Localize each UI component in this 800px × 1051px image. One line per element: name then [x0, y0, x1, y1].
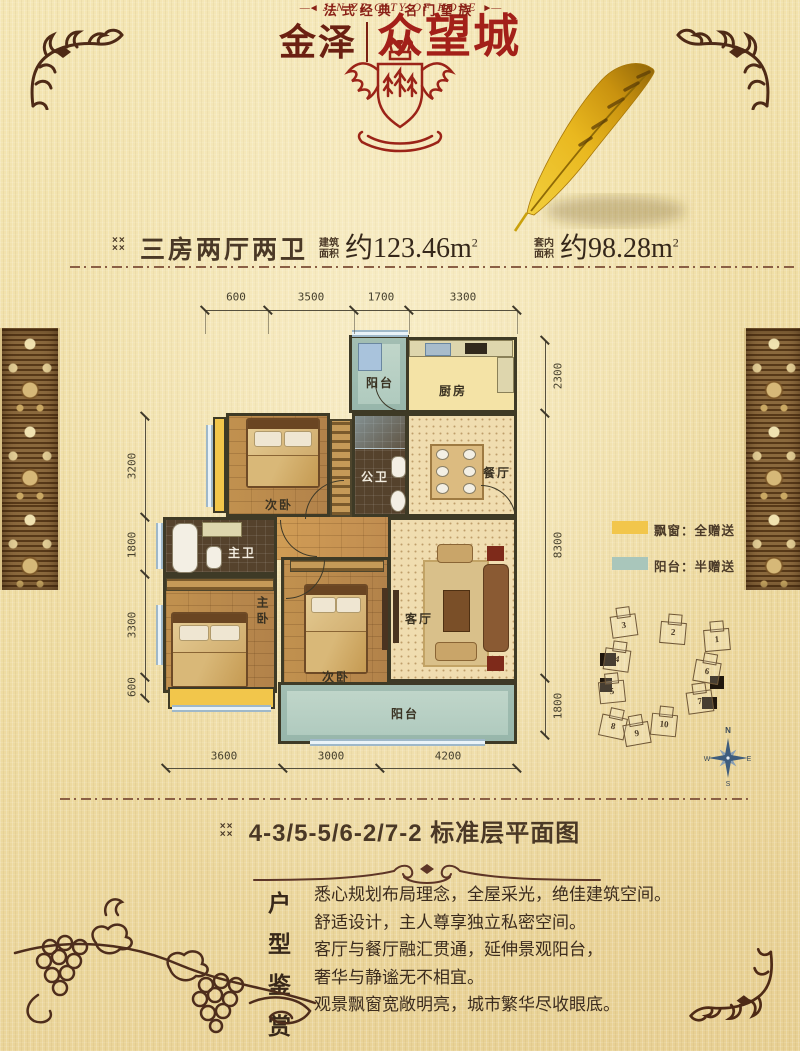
- dim-extension: [354, 312, 355, 334]
- dim-line: [166, 768, 517, 769]
- gross-area-sup: 2: [472, 236, 478, 250]
- bed-pillow: [311, 597, 336, 613]
- room-bedroom-master: 主卧: [163, 575, 277, 693]
- room-label-balcony-bottom: 阳台: [391, 705, 419, 722]
- dim-label: 3300: [450, 291, 477, 304]
- legend-swatch-balcony: [612, 557, 648, 570]
- building-wing: [615, 606, 630, 619]
- tv-wall: [393, 590, 399, 643]
- appreciation-line: 客厅与餐厅融汇贯通，延伸景观阳台，: [314, 937, 774, 965]
- footer-divider: [60, 798, 750, 800]
- plate-icon: [436, 483, 449, 494]
- dim-label: 8300: [552, 532, 565, 559]
- washing-machine-icon: [358, 343, 382, 371]
- window: [206, 425, 213, 507]
- dim-extension: [409, 312, 410, 334]
- stove-icon: [465, 343, 487, 354]
- dim-label: 3500: [298, 291, 325, 304]
- legend-label-bay-window: 飘窗：全赠送: [654, 520, 735, 539]
- site-building-9: 9: [622, 721, 651, 747]
- window: [310, 739, 485, 746]
- poster-page: 金泽 众望城 ―◄ JIN ZE CITY OF HOPE ►― 法式经典 名门…: [0, 0, 800, 1051]
- dim-label: 1700: [368, 291, 395, 304]
- window: [352, 330, 408, 337]
- bathtub-icon: [172, 523, 198, 573]
- plate-icon: [436, 466, 449, 477]
- bed-quilt: [173, 652, 246, 686]
- dim-label: 3300: [126, 612, 139, 639]
- site-building-2: 2: [659, 621, 687, 645]
- asterisk-ornament-icon: ××××: [220, 823, 240, 839]
- room-bath-master: 主卫: [163, 517, 277, 575]
- dim-label: 4200: [435, 750, 462, 763]
- building-number: 1: [705, 633, 730, 645]
- bed-pillow: [284, 431, 313, 447]
- dim-label: 1800: [552, 693, 565, 720]
- inner-area-label: 套内 面积: [534, 238, 554, 260]
- bed-headboard: [248, 420, 318, 429]
- compass-icon: N W E S: [703, 724, 753, 788]
- ornate-border-left: [0, 328, 60, 590]
- side-table-bottom: [487, 656, 504, 671]
- dim-extension: [268, 312, 269, 334]
- plate-icon: [463, 449, 476, 460]
- site-building-5: 5: [598, 680, 626, 705]
- bay-window-left: [213, 417, 226, 513]
- building-number: 3: [611, 618, 636, 631]
- armchair-bottom: [435, 642, 477, 661]
- gross-area-label-top: 建筑: [319, 238, 339, 249]
- dim-label: 3600: [211, 750, 238, 763]
- legend-swatch-bay-window: [612, 521, 648, 534]
- asterisk-ornament-icon: ××××: [112, 237, 132, 253]
- site-building-6: 6: [692, 659, 721, 685]
- shower-area: [355, 416, 405, 449]
- coffee-table: [443, 590, 470, 632]
- svg-text:N: N: [725, 726, 731, 735]
- building-wing: [668, 614, 683, 626]
- appreciation-text: 悉心规划布局理念，全屋采光，绝佳建筑空间。 舒适设计，主人尊享独立私密空间。 客…: [314, 882, 774, 1020]
- inner-area-number: 约98.28m: [560, 233, 673, 264]
- wardrobe-master: [166, 578, 274, 591]
- gross-area-label-bottom: 面积: [319, 249, 339, 260]
- building-number: 10: [652, 718, 677, 730]
- room-label-kitchen: 厨房: [439, 382, 467, 399]
- svg-text:W: W: [704, 756, 711, 763]
- building-wing: [604, 672, 619, 684]
- building-wing: [702, 652, 718, 665]
- kitchen-sink-icon: [425, 343, 451, 356]
- golden-feather-icon: [488, 55, 693, 235]
- site-building-1: 1: [703, 628, 731, 652]
- site-building-3: 3: [610, 613, 639, 638]
- dim-line: [545, 340, 546, 735]
- bed-quilt: [248, 455, 318, 486]
- dim-label: 3200: [126, 453, 139, 480]
- dim-label: 600: [226, 291, 246, 304]
- svg-text:S: S: [726, 781, 731, 788]
- inner-area-sup: 2: [673, 236, 679, 250]
- bed-pillow: [179, 625, 209, 641]
- sofa: [483, 564, 509, 652]
- room-label-bath-public: 公卫: [361, 468, 389, 485]
- svg-text:E: E: [747, 756, 752, 763]
- room-bath-public: 公卫: [352, 413, 408, 517]
- building-number: 5: [599, 685, 624, 697]
- room-kitchen: 厨房: [406, 337, 517, 413]
- appreciation-line: 奢华与静谧无不相宜。: [314, 965, 774, 993]
- kitchen-counter-side: [497, 357, 514, 393]
- dim-extension: [517, 312, 518, 334]
- plate-icon: [463, 466, 476, 477]
- brand-tagline: 法式经典 名门望族: [0, 0, 800, 19]
- site-building-4: 4: [603, 647, 632, 672]
- plate-icon: [463, 483, 476, 494]
- bath-counter: [202, 522, 242, 537]
- room-balcony-bottom: 阳台: [278, 682, 517, 744]
- building-wing: [659, 705, 674, 717]
- site-building-10: 10: [650, 713, 678, 738]
- window: [156, 605, 163, 665]
- building-number: 9: [624, 726, 649, 740]
- header-divider: [70, 266, 796, 268]
- room-label-bedroom-top: 次卧: [265, 496, 293, 513]
- gross-area-value: 约123.46m2: [345, 226, 478, 266]
- dim-extension: [205, 312, 206, 334]
- building-wing: [612, 640, 627, 653]
- appreciation-line: 悉心规划布局理念，全屋采光，绝佳建筑空间。: [314, 882, 774, 910]
- plan-title-row: ×××× 4-3/5-5/6-2/7-2 标准层平面图: [0, 813, 800, 848]
- building-wing: [609, 707, 625, 721]
- unit-type-title: 三房两厅两卫: [140, 230, 308, 266]
- floor-plan: 阳台 厨房 次卧 公卫: [100, 280, 570, 780]
- dim-line: [205, 310, 517, 311]
- legend-label-balcony: 阳台：半赠送: [654, 556, 735, 575]
- plate-icon: [436, 449, 449, 460]
- room-label-bath-master: 主卫: [228, 544, 256, 561]
- site-plan: 1 2 3 4 5 6 7 8 9 10 N W E S: [595, 610, 800, 795]
- toilet-icon: [391, 456, 406, 478]
- gross-area-label: 建筑 面积: [319, 238, 339, 260]
- armchair-top: [437, 544, 473, 563]
- window: [156, 523, 163, 569]
- toilet-icon: [206, 546, 222, 569]
- brand-name-left: 金泽: [279, 12, 357, 66]
- bed-headboard: [306, 586, 366, 595]
- building-wing: [628, 714, 644, 727]
- room-label-living: 客厅: [405, 610, 433, 627]
- building-number: 6: [694, 664, 719, 678]
- bed-pillow: [254, 431, 283, 447]
- gross-area-number: 约123.46m: [345, 233, 472, 264]
- building-wing: [691, 682, 706, 695]
- dim-label: 3000: [318, 750, 345, 763]
- grape-vine-decoration-icon: [10, 885, 330, 1045]
- inner-area-label-top: 套内: [534, 238, 554, 249]
- ornate-border-right: [744, 328, 800, 590]
- appreciation-line: 舒适设计，主人尊享独立私密空间。: [314, 910, 774, 938]
- dim-line: [145, 416, 146, 698]
- appreciation-line: 观景飘窗宽敞明亮，城市繁华尽收眼底。: [314, 992, 774, 1020]
- window: [172, 705, 271, 712]
- dining-table: [430, 444, 484, 500]
- side-table-top: [487, 546, 504, 561]
- building-number: 4: [605, 652, 630, 665]
- bed-pillow: [336, 597, 361, 613]
- dim-label: 1800: [126, 532, 139, 559]
- dim-label: 600: [126, 677, 139, 697]
- sink-icon: [390, 490, 406, 512]
- bed-pillow: [210, 625, 240, 641]
- bed-headboard: [173, 614, 246, 623]
- inner-area-value: 约98.28m2: [560, 226, 679, 266]
- room-living: 客厅: [388, 517, 517, 682]
- room-label-dining: 餐厅: [483, 464, 511, 481]
- bed-bedroom-top: [246, 418, 320, 488]
- standard-floor-plan-title: 4-3/5-5/6-2/7-2 标准层平面图: [249, 813, 580, 848]
- room-label-bedroom-master: 主卧: [254, 596, 271, 628]
- bed-master: [171, 612, 248, 688]
- inner-area-label-bottom: 面积: [534, 249, 554, 260]
- building-number: 7: [687, 694, 712, 707]
- brand-divider: [366, 22, 368, 62]
- building-number: 2: [661, 626, 686, 638]
- site-building-7: 7: [686, 689, 715, 714]
- bed-second: [304, 584, 368, 674]
- building-wing: [709, 620, 724, 632]
- bed-quilt: [306, 631, 366, 672]
- dim-label: 2300: [552, 363, 565, 390]
